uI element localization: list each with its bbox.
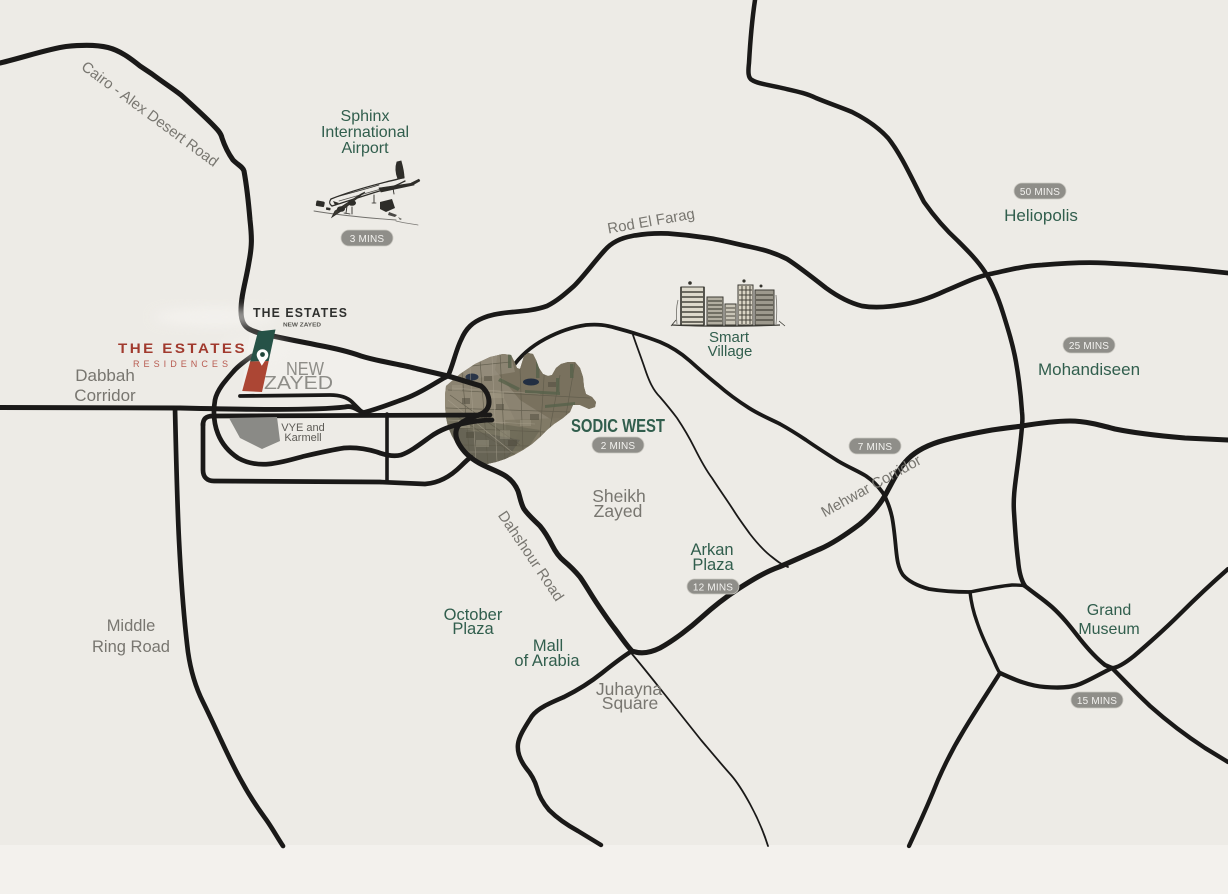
- svg-text:Plaza: Plaza: [452, 620, 494, 638]
- svg-text:7 MINS: 7 MINS: [858, 442, 893, 453]
- svg-text:25 MINS: 25 MINS: [1069, 341, 1109, 352]
- svg-text:Heliopolis: Heliopolis: [1004, 206, 1078, 225]
- svg-text:Plaza: Plaza: [692, 556, 734, 574]
- svg-text:RESIDENCES: RESIDENCES: [133, 359, 232, 369]
- svg-text:International: International: [321, 124, 409, 141]
- svg-text:THE ESTATES: THE ESTATES: [118, 341, 247, 356]
- svg-text:50 MINS: 50 MINS: [1020, 187, 1060, 198]
- svg-text:Corridor: Corridor: [74, 386, 136, 405]
- svg-text:SODIC WEST: SODIC WEST: [571, 415, 666, 436]
- svg-text:Zayed: Zayed: [594, 501, 643, 521]
- svg-text:Sphinx: Sphinx: [341, 108, 390, 125]
- svg-text:Village: Village: [708, 343, 753, 360]
- svg-text:Middle: Middle: [107, 617, 156, 635]
- svg-text:ZAYED: ZAYED: [264, 372, 333, 393]
- svg-text:of Arabia: of Arabia: [514, 652, 580, 670]
- svg-text:12 MINS: 12 MINS: [693, 583, 733, 594]
- svg-text:THE ESTATES: THE ESTATES: [253, 305, 348, 320]
- svg-text:3 MINS: 3 MINS: [350, 234, 385, 245]
- svg-text:Square: Square: [602, 693, 658, 713]
- svg-text:Dabbah: Dabbah: [75, 366, 135, 385]
- svg-text:Mohandiseen: Mohandiseen: [1038, 360, 1140, 379]
- svg-text:2 MINS: 2 MINS: [601, 441, 636, 452]
- svg-text:Karmell: Karmell: [284, 432, 321, 444]
- svg-text:NEW ZAYED: NEW ZAYED: [283, 323, 321, 329]
- svg-text:Grand: Grand: [1087, 602, 1131, 619]
- svg-text:Airport: Airport: [341, 140, 389, 157]
- svg-text:Museum: Museum: [1078, 621, 1139, 638]
- svg-text:15 MINS: 15 MINS: [1077, 696, 1117, 707]
- svg-text:Ring Road: Ring Road: [92, 638, 170, 656]
